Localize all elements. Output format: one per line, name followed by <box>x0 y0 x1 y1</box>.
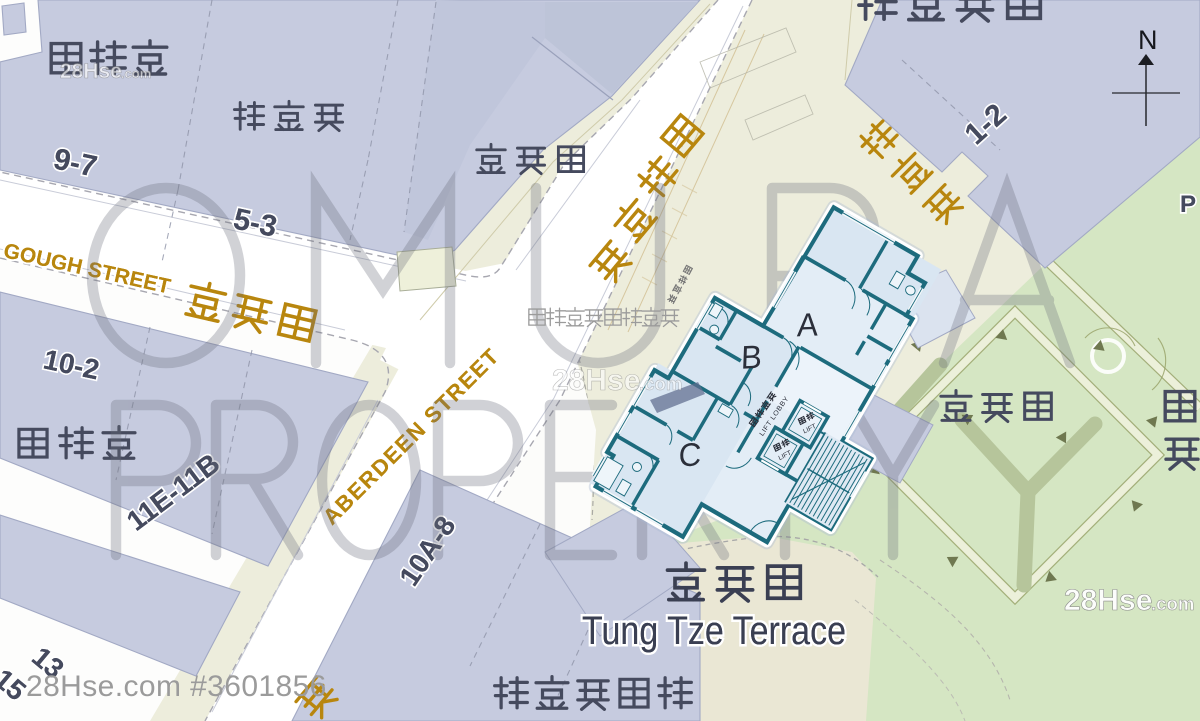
svg-text:Tung Tze Terrace: Tung Tze Terrace <box>582 609 846 653</box>
svg-text:.com: .com <box>121 66 151 81</box>
svg-text:28Hse: 28Hse <box>552 364 640 397</box>
svg-text:28Hse: 28Hse <box>60 60 122 83</box>
svg-text:.com: .com <box>1151 593 1194 614</box>
svg-text:.com: .com <box>639 373 682 394</box>
svg-text:B: B <box>740 338 762 376</box>
svg-text:A: A <box>796 306 819 344</box>
svg-text:28Hse.com #3601856: 28Hse.com #3601856 <box>26 670 327 703</box>
svg-text:C: C <box>678 436 702 474</box>
svg-text:P: P <box>1180 191 1196 218</box>
svg-text:28Hse: 28Hse <box>1064 584 1152 617</box>
svg-text:N: N <box>1138 25 1158 55</box>
